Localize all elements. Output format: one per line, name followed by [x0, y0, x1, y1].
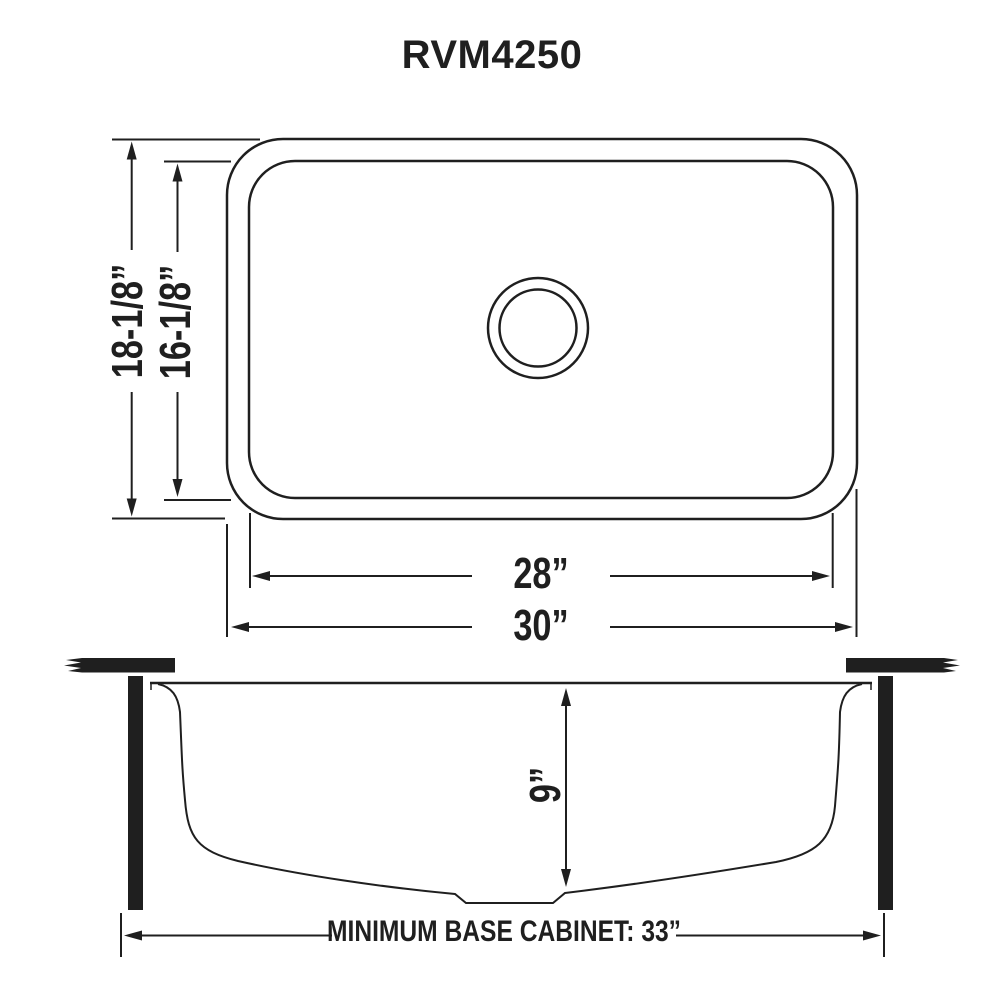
- countertop-left-slab: [64, 658, 175, 673]
- bowl-depth-arrow-up: [561, 688, 571, 706]
- top-view-drawing: [227, 139, 857, 519]
- bowl-width-arrow-right: [812, 571, 830, 581]
- drain-inner-circle: [500, 290, 577, 367]
- base-cabinet-arrow-right: [863, 931, 881, 941]
- bowl-height-arrow-down: [173, 479, 183, 497]
- sink-bowl-outline: [249, 161, 833, 498]
- bowl-height-dimension-label: 16-1/8”: [154, 265, 198, 379]
- side-view-drawing: [64, 658, 960, 910]
- bowl-depth-arrow-down: [561, 869, 571, 887]
- line-art: [0, 0, 1000, 1000]
- bowl-width-dimension-label: 28”: [513, 552, 568, 596]
- overall-width-arrow-left: [231, 622, 249, 632]
- sink-technical-drawing: RVM4250 18-1/8” 16-1/8” 28” 30” 9” MINIM…: [0, 0, 1000, 1000]
- overall-width-dimension-label: 30”: [513, 604, 568, 648]
- top-view-extension-lines: [112, 140, 857, 638]
- sink-outer-rim-outline: [227, 139, 857, 519]
- overall-height-arrow-down: [127, 499, 137, 517]
- model-number-title: RVM4250: [402, 35, 583, 75]
- sink-bowl-profile: [158, 684, 862, 903]
- base-cabinet-dimension-label: MINIMUM BASE CABINET: 33”: [327, 917, 681, 947]
- overall-height-dimension-label: 18-1/8”: [106, 264, 150, 378]
- overall-height-arrow-up: [127, 142, 137, 160]
- cabinet-wall-left: [128, 676, 143, 910]
- base-cabinet-arrow-left: [124, 931, 142, 941]
- drain-outer-circle: [488, 278, 588, 378]
- countertop-right-slab: [846, 658, 960, 673]
- bowl-height-arrow-up: [173, 164, 183, 182]
- overall-width-arrow-right: [835, 622, 853, 632]
- bowl-depth-dimension-label: 9”: [524, 767, 568, 803]
- cabinet-wall-right: [878, 676, 893, 910]
- bowl-width-arrow-left: [252, 571, 270, 581]
